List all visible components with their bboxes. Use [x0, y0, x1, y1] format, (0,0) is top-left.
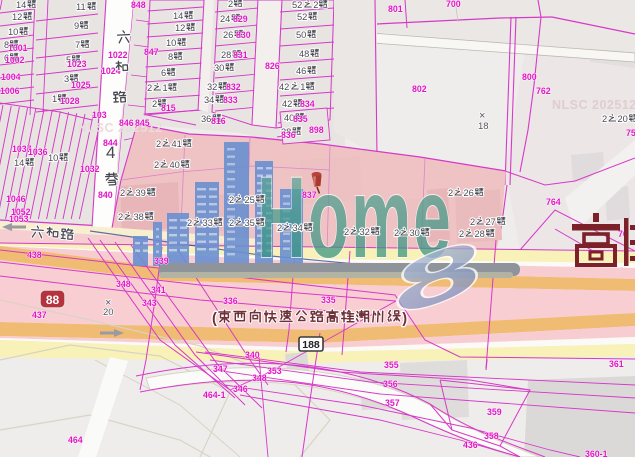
svg-text:14: 14	[14, 158, 24, 168]
svg-text:845: 845	[135, 118, 150, 128]
svg-text:336: 336	[223, 296, 238, 306]
svg-text:436: 436	[463, 440, 478, 450]
svg-text:32: 32	[207, 82, 217, 92]
svg-text:347: 347	[213, 364, 228, 374]
svg-text:1: 1	[163, 83, 168, 93]
svg-text:103: 103	[92, 110, 107, 120]
svg-text:830: 830	[236, 30, 251, 40]
svg-text:2: 2	[470, 217, 475, 227]
svg-text:38: 38	[134, 212, 144, 222]
svg-text:26: 26	[223, 30, 233, 40]
svg-text:41: 41	[172, 139, 182, 149]
svg-text:464-1: 464-1	[203, 390, 226, 400]
svg-text:829: 829	[233, 14, 248, 24]
svg-text:361: 361	[609, 359, 624, 369]
svg-text:27: 27	[486, 217, 496, 227]
svg-text:52: 52	[292, 0, 302, 10]
svg-text:30: 30	[410, 228, 420, 238]
svg-text:1: 1	[52, 94, 57, 104]
svg-text:2: 2	[448, 188, 453, 198]
svg-text:357: 357	[385, 398, 400, 408]
svg-text:2: 2	[152, 99, 157, 109]
svg-text:2: 2	[394, 228, 399, 238]
svg-text:7: 7	[75, 40, 80, 50]
svg-text:2: 2	[313, 0, 318, 10]
svg-text:2: 2	[229, 218, 234, 228]
svg-text:18: 18	[478, 121, 489, 132]
svg-text:32: 32	[360, 227, 370, 237]
svg-text:12: 12	[175, 23, 185, 33]
svg-text:12: 12	[12, 12, 22, 22]
svg-text:1022: 1022	[108, 50, 128, 60]
svg-text:14: 14	[16, 0, 26, 10]
svg-text:355: 355	[384, 360, 399, 370]
svg-text:340: 340	[245, 350, 260, 360]
svg-text:464: 464	[68, 435, 83, 445]
svg-text:1046: 1046	[6, 194, 26, 204]
svg-text:801: 801	[388, 4, 403, 14]
svg-text:NLSC 202512: NLSC 202512	[552, 98, 635, 112]
svg-text:3: 3	[64, 74, 69, 84]
svg-text:339: 339	[154, 256, 169, 266]
svg-text:1002: 1002	[5, 55, 25, 65]
svg-text:39: 39	[136, 188, 146, 198]
svg-text:833: 833	[223, 95, 238, 105]
svg-text:846: 846	[119, 118, 134, 128]
svg-text:2: 2	[602, 114, 607, 124]
svg-text:2: 2	[277, 223, 282, 233]
svg-text:341: 341	[151, 285, 166, 295]
svg-text:8: 8	[168, 52, 173, 62]
svg-text:28: 28	[221, 50, 231, 60]
svg-text:4: 4	[106, 143, 115, 162]
svg-text:20: 20	[618, 114, 628, 124]
svg-text:42: 42	[282, 99, 292, 109]
svg-text:800: 800	[522, 72, 537, 82]
svg-text:2: 2	[187, 218, 192, 228]
svg-text:88: 88	[46, 293, 60, 307]
svg-text:6: 6	[161, 68, 166, 78]
svg-text:816: 816	[211, 116, 226, 126]
svg-text:26: 26	[464, 188, 474, 198]
svg-text:832: 832	[226, 82, 241, 92]
svg-text:10: 10	[48, 153, 58, 163]
svg-text:33: 33	[203, 218, 213, 228]
svg-text:837: 837	[302, 190, 317, 200]
svg-text:834: 834	[300, 99, 315, 109]
svg-text:1028: 1028	[60, 96, 80, 106]
svg-text:1006: 1006	[0, 86, 20, 96]
svg-text:335: 335	[321, 295, 336, 305]
svg-text:34: 34	[204, 95, 214, 105]
svg-text:437: 437	[32, 310, 47, 320]
svg-text:24: 24	[220, 14, 230, 24]
svg-text:848: 848	[131, 0, 146, 10]
svg-text:2: 2	[229, 195, 234, 205]
svg-text:2: 2	[344, 227, 349, 237]
svg-text:348: 348	[252, 373, 267, 383]
svg-text:2: 2	[459, 229, 464, 239]
svg-text:764: 764	[546, 197, 561, 207]
svg-text:762: 762	[536, 86, 551, 96]
svg-text:42: 42	[279, 82, 289, 92]
svg-text:188: 188	[302, 339, 320, 351]
svg-text:1053: 1053	[9, 214, 29, 224]
svg-text:353: 353	[267, 366, 282, 376]
svg-text:2: 2	[120, 188, 125, 198]
svg-text:36: 36	[201, 114, 211, 124]
svg-text:75: 75	[626, 128, 635, 138]
svg-text:840: 840	[98, 190, 113, 200]
svg-text:898: 898	[309, 125, 324, 135]
svg-text:1004: 1004	[1, 72, 21, 82]
svg-text:14: 14	[173, 11, 183, 21]
svg-text:700: 700	[446, 0, 461, 9]
svg-text:50: 50	[296, 30, 306, 40]
svg-text:356: 356	[383, 379, 398, 389]
svg-text:1032: 1032	[80, 164, 100, 174]
svg-text:1001: 1001	[8, 43, 28, 53]
svg-text:348: 348	[116, 279, 131, 289]
svg-text:): )	[402, 311, 407, 327]
svg-text:835: 835	[293, 114, 308, 124]
svg-text:10: 10	[166, 38, 176, 48]
svg-text:34: 34	[293, 223, 303, 233]
svg-text:11: 11	[76, 2, 86, 12]
svg-text:10: 10	[8, 27, 18, 37]
svg-text:1025: 1025	[71, 80, 91, 90]
svg-text:(: (	[212, 311, 217, 327]
svg-text:346: 346	[233, 384, 248, 394]
svg-text:9: 9	[74, 21, 79, 31]
svg-text:40: 40	[170, 160, 180, 170]
svg-text:30: 30	[214, 63, 224, 73]
svg-text:1023: 1023	[67, 59, 87, 69]
svg-text:35: 35	[245, 218, 255, 228]
svg-text:343: 343	[142, 298, 157, 308]
svg-text:20: 20	[103, 307, 114, 318]
svg-text:52: 52	[297, 12, 307, 22]
svg-text:48: 48	[299, 49, 309, 59]
svg-text:46: 46	[296, 66, 306, 76]
svg-text:1: 1	[300, 82, 305, 92]
svg-text:2: 2	[118, 212, 123, 222]
svg-text:2: 2	[156, 139, 161, 149]
svg-text:2: 2	[147, 83, 152, 93]
svg-text:826: 826	[265, 61, 280, 71]
svg-text:847: 847	[144, 47, 159, 57]
svg-text:815: 815	[161, 103, 176, 113]
svg-text:359: 359	[487, 407, 502, 417]
svg-text:2: 2	[228, 0, 233, 9]
svg-text:360-1: 360-1	[585, 449, 608, 457]
svg-text:831: 831	[233, 50, 248, 60]
svg-text:28: 28	[475, 229, 485, 239]
svg-text:1036: 1036	[28, 147, 48, 157]
svg-text:836: 836	[281, 130, 296, 140]
svg-text:25: 25	[245, 195, 255, 205]
svg-text:2: 2	[154, 160, 159, 170]
svg-text:802: 802	[412, 84, 427, 94]
svg-text:438: 438	[27, 250, 42, 260]
svg-text:358: 358	[484, 431, 499, 441]
